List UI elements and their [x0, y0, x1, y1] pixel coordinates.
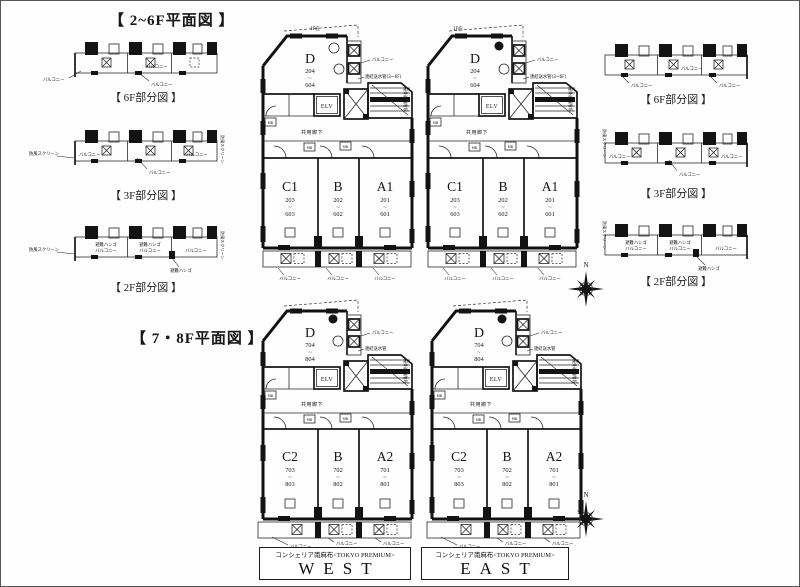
svg-text:MB: MB	[437, 394, 443, 398]
unit-c2-label: C2 703 ~ 803	[451, 449, 467, 488]
balcony-label: バルコニー	[374, 276, 395, 282]
north-label: N	[583, 261, 588, 269]
room-circle	[498, 315, 507, 324]
balcony-label: バルコニー	[721, 154, 742, 160]
svg-text:D: D	[305, 52, 315, 67]
windscreen-label: 防風スクリーン	[602, 129, 608, 157]
windscreen-label: 防風スクリーン	[220, 135, 226, 163]
balcony-shaft	[347, 315, 361, 355]
svg-text:~: ~	[552, 474, 556, 481]
corridor-label: 共用廊下	[470, 401, 492, 408]
elevator-label: ELV	[486, 104, 499, 110]
balcony-label: バルコニー	[444, 276, 465, 282]
unit-a1-label: A1 201 ~ 601	[377, 179, 394, 218]
escape-ladder-label: 避難ハシゴ	[625, 239, 647, 246]
unit-d-label: D 204 ~ 604	[470, 52, 481, 89]
svg-text:~: ~	[548, 204, 552, 211]
unit-a1-label: A1 201 ~ 601	[542, 179, 559, 218]
unit-c2-label: C2 703 ~ 803	[282, 449, 298, 488]
compass-north-icon: N	[563, 487, 609, 545]
svg-text:701: 701	[549, 467, 558, 474]
svg-text:~: ~	[477, 349, 481, 356]
escape-ladder-label: 避難ハシゴ	[95, 241, 117, 248]
svg-text:C1: C1	[447, 179, 463, 194]
plan-west-2-6f: 1F庇 バルコニー 連結送水管(3~6F) 屋外避難階段 D 204 ~ 6	[254, 21, 416, 287]
svg-text:~: ~	[383, 474, 387, 481]
caption-6f-right: 【 6F部分図 】	[601, 91, 751, 107]
balcony-label: バルコニー	[537, 57, 558, 63]
elevator-box: ELV	[314, 367, 340, 389]
svg-text:703: 703	[285, 467, 294, 474]
escape-ladder-label: 避難ハシゴ	[170, 267, 192, 274]
balcony-label: バルコニー	[492, 276, 513, 282]
svg-text:MB: MB	[343, 145, 349, 149]
svg-text:MB: MB	[472, 146, 478, 150]
svg-text:~: ~	[383, 204, 387, 211]
svg-text:704: 704	[305, 342, 315, 349]
balcony-strip	[263, 251, 411, 267]
room-circle	[329, 43, 339, 53]
svg-text:MB: MB	[512, 417, 518, 421]
svg-text:801: 801	[549, 481, 558, 488]
windscreen-label: 防風スクリーン	[29, 150, 59, 157]
outdoor-stairs-label: 屋外避難階段	[572, 359, 578, 384]
balcony-label: バルコニー	[609, 154, 630, 160]
partial-plan-2f-left: 防風スクリーン 避難ハシゴ バルコニー 避難ハシゴ バルコニー バルコニー 避難…	[29, 221, 225, 277]
elevator-box: ELV	[314, 94, 340, 116]
svg-text:~: ~	[308, 349, 312, 356]
standpipe-label: 連結送水管	[365, 345, 387, 352]
plan-east-2-6f: 1F庇 バルコニー 連結送水管(3~6F) 屋外避難階段 D 204 ~ 6	[419, 21, 581, 287]
room-circle	[329, 315, 338, 324]
shaft-box	[513, 361, 537, 391]
north-label: N	[583, 491, 588, 499]
balcony-shaft	[516, 315, 530, 355]
balcony-label: バルコニー	[679, 172, 700, 178]
shaft-box	[509, 89, 533, 119]
svg-text:201: 201	[545, 197, 554, 204]
wall-piers	[430, 309, 584, 522]
svg-text:802: 802	[333, 481, 342, 488]
balcony-shaft	[512, 41, 526, 83]
brand-text: コンシェリア南麻布<TOKYO PREMIUM>	[428, 550, 562, 559]
balcony-label: バルコニー	[149, 170, 170, 176]
footer-east-box: コンシェリア南麻布<TOKYO PREMIUM> EAST	[421, 547, 569, 580]
caption-2f-right: 【 2F部分図 】	[601, 273, 751, 289]
svg-text:702: 702	[333, 467, 342, 474]
svg-text:804: 804	[305, 356, 315, 363]
shaft-box	[344, 361, 368, 391]
canopy-label: 1F庇	[310, 25, 320, 32]
room-circle	[499, 64, 509, 74]
standpipe-label: 連結送水管	[534, 345, 556, 352]
balcony-label: バルコニー	[79, 152, 100, 158]
balcony-label: バルコニー	[372, 330, 393, 336]
partial-plan-3f-right: 防風スクリーン バルコニー バルコニー バルコニー	[559, 127, 755, 181]
windscreen-label: 防風スクリーン	[29, 246, 59, 253]
caption-3f-left: 【 3F部分図 】	[71, 187, 221, 203]
caption-2f-left: 【 2F部分図 】	[71, 279, 221, 295]
svg-text:B: B	[333, 449, 342, 464]
svg-text:MB: MB	[476, 418, 482, 422]
balcony-label: バルコニー	[541, 330, 562, 336]
unit-b-label: B 202 ~ 602	[498, 179, 507, 218]
svg-text:~: ~	[336, 474, 340, 481]
svg-text:A2: A2	[546, 449, 563, 464]
balcony-label: バルコニー	[625, 246, 646, 252]
svg-text:MB: MB	[268, 394, 274, 398]
svg-text:601: 601	[380, 211, 389, 218]
svg-text:201: 201	[380, 197, 389, 204]
elevator-box: ELV	[479, 94, 505, 116]
svg-text:MB: MB	[343, 417, 349, 421]
corridor-label: 共用廊下	[301, 401, 323, 408]
balcony-label: バルコニー	[146, 64, 167, 70]
balcony-label: バルコニー	[681, 66, 702, 72]
balcony-label: バルコニー	[139, 248, 160, 254]
svg-text:704: 704	[474, 342, 484, 349]
balcony-label: バルコニー	[669, 246, 690, 252]
unit-a2-label: A2 701 ~ 801	[377, 449, 394, 488]
svg-text:C1: C1	[282, 179, 298, 194]
escape-ladder-label: 避難ハシゴ	[139, 241, 161, 248]
balcony-label: バルコニー	[185, 248, 206, 254]
svg-text:803: 803	[454, 481, 463, 488]
svg-text:602: 602	[498, 211, 507, 218]
balcony-label: バルコニー	[715, 246, 736, 252]
footer-west-box: コンシェリア南麻布<TOKYO PREMIUM> WEST	[259, 547, 411, 580]
svg-text:MB: MB	[268, 121, 274, 125]
standpipe-label: 連結送水管(3~6F)	[530, 73, 567, 80]
svg-text:604: 604	[305, 82, 315, 89]
balcony-label: バルコニー	[279, 276, 300, 282]
balcony-shaft	[347, 41, 361, 83]
svg-text:~: ~	[505, 474, 509, 481]
balcony-label: バルコニー	[719, 83, 740, 89]
svg-text:D: D	[305, 326, 315, 341]
balcony-hatch-boxes	[102, 146, 193, 155]
svg-text:804: 804	[474, 356, 484, 363]
canopy-label: 1F庇	[453, 25, 463, 32]
outdoor-stairs-label: 屋外避難階段	[403, 359, 409, 384]
svg-text:601: 601	[545, 211, 554, 218]
unit-a2-label: A2 701 ~ 801	[546, 449, 563, 488]
svg-text:~: ~	[308, 75, 312, 82]
balcony-strip	[258, 522, 411, 538]
balcony-label: バルコニー	[372, 57, 393, 63]
svg-text:~: ~	[288, 204, 292, 211]
svg-text:MB: MB	[508, 145, 514, 149]
svg-text:703: 703	[454, 467, 463, 474]
escape-ladder-label: 避難ハシゴ	[669, 239, 691, 246]
svg-text:604: 604	[470, 82, 480, 89]
brand-text: コンシェリア南麻布<TOKYO PREMIUM>	[266, 550, 404, 559]
title-2-6f: 【 2~6F平面図 】	[109, 9, 234, 30]
balcony-label: バルコニー	[631, 83, 652, 89]
balcony-hatch-boxes	[632, 148, 718, 157]
svg-text:701: 701	[380, 467, 389, 474]
svg-text:B: B	[502, 449, 511, 464]
svg-text:603: 603	[450, 211, 459, 218]
corridor-label: 共用廊下	[301, 129, 323, 136]
svg-text:603: 603	[285, 211, 294, 218]
windscreen-label: 防風スクリーン	[602, 221, 608, 249]
partial-plan-3f-left: 防風スクリーン バルコニー バルコニー バルコニー 防風スクリーン	[29, 125, 225, 179]
elevator-box: ELV	[483, 367, 509, 389]
svg-text:C2: C2	[451, 449, 467, 464]
shaft-box	[344, 89, 368, 119]
svg-text:~: ~	[457, 474, 461, 481]
svg-text:202: 202	[498, 197, 507, 204]
svg-text:A1: A1	[542, 179, 559, 194]
svg-text:202: 202	[333, 197, 342, 204]
svg-text:B: B	[498, 179, 507, 194]
svg-text:204: 204	[470, 68, 480, 75]
balcony-strip	[427, 522, 580, 538]
balcony-label: バルコニー	[327, 276, 348, 282]
balcony-label: バルコニー	[186, 152, 207, 158]
balcony-strip	[428, 251, 576, 267]
partial-plan-6f-right: バルコニー バルコニー バルコニー	[559, 39, 755, 93]
room-circle	[334, 64, 344, 74]
corridor-label: 共用廊下	[466, 129, 488, 136]
caption-3f-right: 【 3F部分図 】	[601, 185, 751, 201]
svg-text:203: 203	[450, 197, 459, 204]
svg-text:801: 801	[380, 481, 389, 488]
svg-text:~: ~	[453, 204, 457, 211]
svg-text:D: D	[474, 326, 484, 341]
svg-text:~: ~	[336, 204, 340, 211]
partial-plan-6f-left: バルコニー バルコニー バルコニー	[29, 37, 225, 91]
floorplan-sheet: 【 2~6F平面図 】 【 7・8F平面図 】 バルコニー バルコニー バルコニ…	[0, 0, 800, 587]
balcony-label: バルコニー	[151, 82, 172, 88]
balcony-label: バルコニー	[95, 248, 116, 254]
svg-text:602: 602	[333, 211, 342, 218]
svg-text:203: 203	[285, 197, 294, 204]
plan-east-7-8f: バルコニー 連結送水管 屋外避難階段 D 704 ~ 804 ELV	[423, 297, 585, 553]
elevator-label: ELV	[321, 104, 334, 110]
balcony-label: バルコニー	[43, 77, 64, 83]
elevator-label: ELV	[490, 377, 503, 383]
svg-text:~: ~	[288, 474, 292, 481]
svg-text:C2: C2	[282, 449, 298, 464]
unit-d-label: D 704 ~ 804	[305, 326, 316, 363]
windscreen-label: 防風スクリーン	[220, 231, 226, 259]
svg-text:D: D	[470, 52, 480, 67]
plan-west-7-8f: バルコニー 連結送水管 屋外避難階段 D 704 ~ 804 ELV	[254, 297, 416, 553]
outdoor-stairs-label: 屋外避難階段	[403, 87, 409, 112]
caption-6f-left: 【 6F部分図 】	[71, 89, 221, 105]
svg-text:A1: A1	[377, 179, 394, 194]
unit-d-label: D 204 ~ 604	[305, 52, 316, 89]
outdoor-stairs-label: 屋外避難階段	[568, 87, 574, 112]
room-circle	[495, 42, 504, 51]
svg-text:803: 803	[285, 481, 294, 488]
unit-c1-label: C1 203 ~ 603	[282, 179, 298, 218]
svg-text:MB: MB	[307, 418, 313, 422]
unit-b-label: B 702 ~ 802	[333, 449, 342, 488]
balcony-hatch-boxes	[625, 60, 723, 69]
elevator-label: ELV	[321, 377, 334, 383]
svg-text:MB: MB	[307, 146, 313, 150]
unit-c1-label: C1 203 ~ 603	[447, 179, 463, 218]
svg-text:MB: MB	[433, 121, 439, 125]
svg-text:~: ~	[501, 204, 505, 211]
svg-text:204: 204	[305, 68, 315, 75]
balcony-label: バルコニー	[539, 276, 560, 282]
svg-text:702: 702	[502, 467, 511, 474]
building-name-west: WEST	[260, 560, 410, 577]
room-circle	[333, 336, 343, 346]
unit-b-label: B 202 ~ 602	[333, 179, 342, 218]
svg-text:802: 802	[502, 481, 511, 488]
wall-piers	[261, 309, 415, 522]
unit-b-label: B 702 ~ 802	[502, 449, 511, 488]
svg-text:A2: A2	[377, 449, 394, 464]
building-name-east: EAST	[422, 560, 568, 577]
svg-text:B: B	[333, 179, 342, 194]
escape-ladder-label: 避難ハシゴ	[698, 265, 720, 272]
room-circle	[502, 336, 512, 346]
standpipe-label: 連結送水管(3~6F)	[365, 73, 402, 80]
svg-text:~: ~	[473, 75, 477, 82]
unit-d-label: D 704 ~ 804	[474, 326, 485, 363]
title-7-8f: 【 7・8F平面図 】	[131, 327, 264, 348]
